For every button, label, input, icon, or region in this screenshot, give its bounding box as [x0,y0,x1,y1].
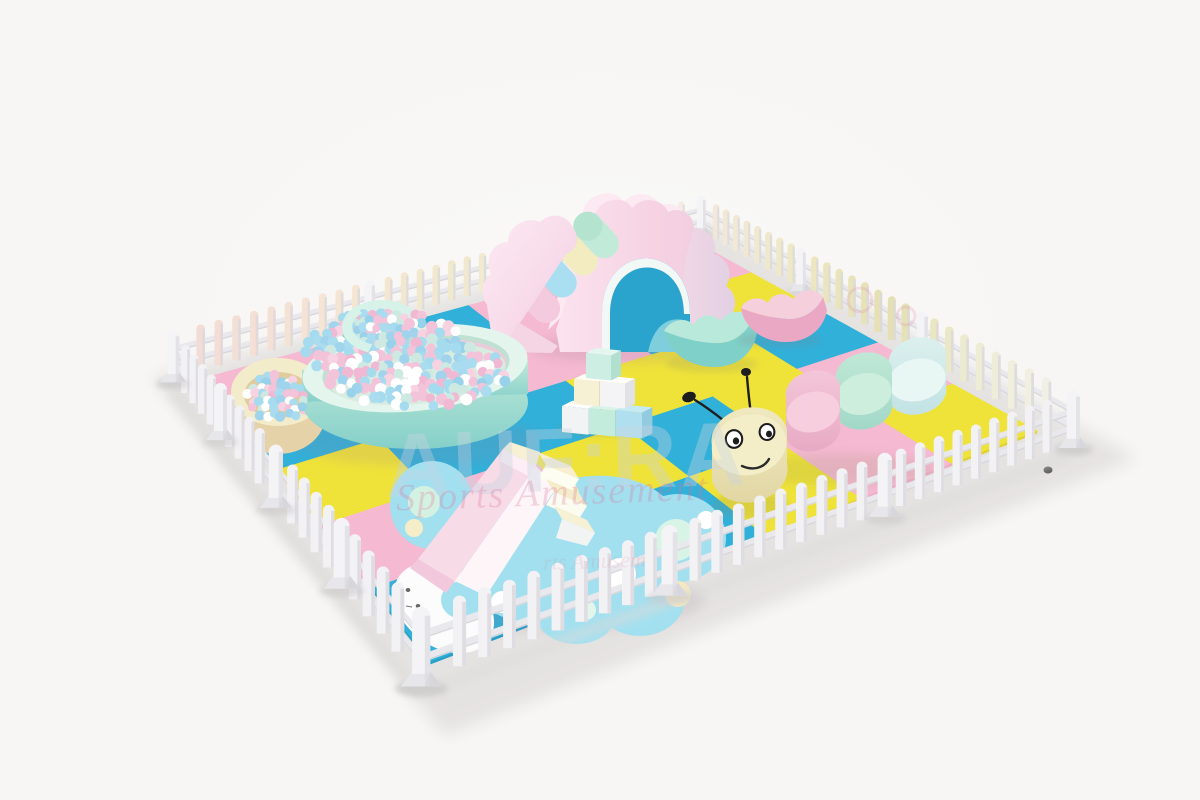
svg-text:rts Amusem: rts Amusem [543,546,647,575]
